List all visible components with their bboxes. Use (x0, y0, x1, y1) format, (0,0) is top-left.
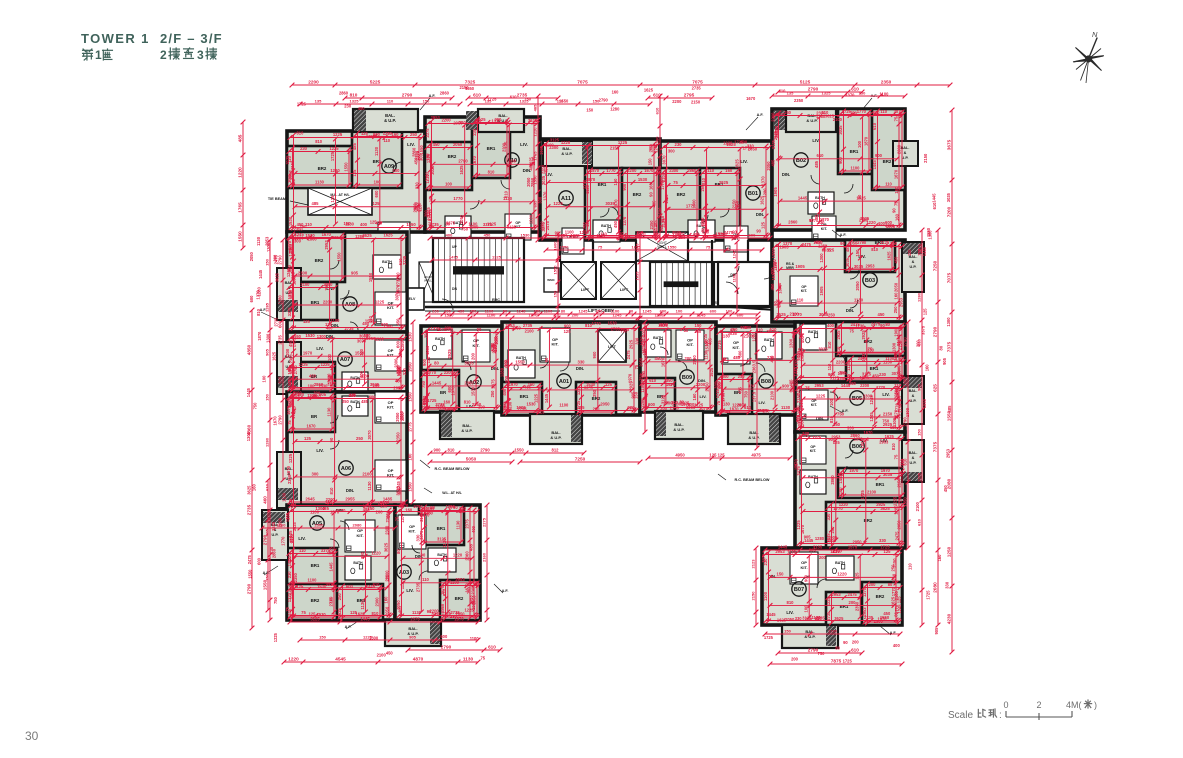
svg-text:750: 750 (621, 329, 629, 334)
svg-text:2790: 2790 (932, 326, 937, 337)
svg-text:900: 900 (434, 447, 442, 452)
svg-text:1280: 1280 (288, 289, 293, 299)
svg-text:250: 250 (410, 132, 418, 137)
svg-text:90: 90 (555, 230, 560, 235)
svg-text:LIV.: LIV. (520, 142, 528, 147)
svg-text:485: 485 (532, 104, 537, 111)
svg-text:2350: 2350 (289, 533, 294, 543)
svg-text:1670: 1670 (306, 423, 316, 428)
svg-text:1225: 1225 (618, 140, 628, 145)
svg-text:4975: 4975 (751, 452, 761, 457)
svg-text:750: 750 (324, 283, 329, 291)
svg-text:& U.P.: & U.P. (673, 427, 684, 432)
svg-text:330: 330 (748, 383, 756, 388)
svg-text:7325: 7325 (465, 79, 476, 84)
svg-text:1530: 1530 (407, 332, 412, 342)
svg-text:BR1: BR1 (850, 149, 859, 154)
svg-text:160: 160 (692, 393, 697, 401)
svg-text:BR2: BR2 (315, 258, 324, 263)
svg-text:450: 450 (613, 220, 618, 228)
svg-text:450: 450 (386, 651, 394, 656)
svg-text:1130: 1130 (367, 481, 372, 491)
svg-text:BR1: BR1 (870, 366, 879, 371)
svg-text:1100: 1100 (776, 112, 786, 117)
svg-text:75: 75 (481, 656, 486, 661)
svg-text:1370: 1370 (582, 179, 587, 189)
svg-text:1530: 1530 (861, 352, 866, 362)
svg-text:1100: 1100 (851, 165, 861, 170)
svg-text:1220: 1220 (528, 214, 533, 224)
svg-text:230: 230 (896, 370, 901, 378)
svg-text:100: 100 (478, 404, 486, 409)
svg-text:2100: 2100 (770, 390, 775, 400)
svg-text:2300: 2300 (288, 354, 293, 364)
svg-text:250: 250 (356, 436, 364, 441)
svg-text:2050: 2050 (735, 200, 740, 210)
svg-text:610: 610 (851, 647, 859, 652)
svg-text:2735: 2735 (277, 335, 282, 345)
svg-text:1905: 1905 (819, 286, 824, 296)
svg-text:2300: 2300 (315, 522, 325, 527)
svg-text:BR1: BR1 (311, 300, 320, 305)
svg-text:1530: 1530 (608, 320, 618, 325)
svg-text:400: 400 (395, 378, 403, 383)
svg-text:1970: 1970 (509, 382, 519, 387)
svg-text:BR2: BR2 (311, 598, 320, 603)
svg-text:U.P.: U.P. (910, 461, 917, 465)
svg-text:905: 905 (264, 348, 269, 355)
svg-text:2300: 2300 (294, 235, 304, 240)
svg-text:1220: 1220 (453, 553, 463, 558)
svg-text:810: 810 (827, 341, 832, 349)
svg-text:125 125: 125 125 (709, 452, 725, 457)
svg-text:1245: 1245 (517, 308, 527, 313)
svg-text:1530: 1530 (288, 216, 293, 226)
svg-text:485: 485 (771, 159, 776, 167)
svg-text:2200: 2200 (308, 79, 319, 84)
svg-text:1100: 1100 (880, 91, 890, 96)
svg-text:905: 905 (409, 634, 416, 639)
svg-text:200: 200 (376, 510, 384, 515)
svg-text:125: 125 (897, 596, 902, 604)
svg-text:2953: 2953 (324, 240, 329, 250)
svg-text:1250: 1250 (946, 546, 951, 557)
svg-text:1530: 1530 (813, 240, 823, 245)
svg-text:1625: 1625 (383, 232, 393, 237)
svg-text:610: 610 (504, 190, 509, 198)
svg-text:90: 90 (799, 332, 804, 337)
svg-text:2790: 2790 (293, 365, 298, 375)
svg-text:1300: 1300 (425, 345, 430, 355)
svg-text:810: 810 (829, 415, 834, 423)
svg-text:2050: 2050 (848, 241, 858, 246)
svg-text:1530: 1530 (638, 177, 648, 182)
svg-text:2300: 2300 (816, 110, 826, 115)
svg-text:1245: 1245 (579, 308, 589, 313)
svg-text:80: 80 (446, 221, 451, 226)
svg-text:75: 75 (287, 420, 292, 425)
svg-text:230: 230 (805, 616, 813, 621)
svg-text:2200: 2200 (686, 405, 696, 410)
svg-text:DIN.: DIN. (782, 172, 790, 177)
svg-text:LIV.: LIV. (786, 610, 793, 615)
svg-text:2050: 2050 (894, 282, 899, 292)
svg-text:2953: 2953 (292, 337, 297, 347)
svg-text:2300: 2300 (298, 270, 308, 275)
svg-text:125: 125 (396, 289, 401, 297)
svg-text:2735: 2735 (826, 611, 831, 621)
svg-text:2350: 2350 (881, 79, 892, 84)
svg-text:230: 230 (286, 512, 291, 520)
svg-text:1575: 1575 (848, 544, 858, 549)
svg-text:100: 100 (676, 308, 683, 313)
svg-text:1100: 1100 (559, 403, 569, 408)
svg-text:1100: 1100 (545, 143, 555, 148)
svg-text:1625: 1625 (886, 251, 891, 261)
svg-text:& U.P.: & U.P. (748, 435, 759, 440)
svg-text:450: 450 (791, 332, 796, 340)
svg-text:610: 610 (817, 153, 825, 158)
svg-text:610: 610 (442, 588, 447, 596)
svg-text:1280: 1280 (355, 234, 365, 239)
svg-text:1280: 1280 (916, 292, 921, 302)
svg-text:90: 90 (756, 228, 761, 233)
svg-text:2300: 2300 (790, 312, 800, 317)
svg-text:2150: 2150 (897, 340, 902, 350)
svg-text:1550: 1550 (336, 252, 341, 262)
svg-text:150: 150 (695, 323, 703, 328)
svg-text:110: 110 (907, 249, 912, 256)
svg-text:1245: 1245 (869, 412, 874, 422)
svg-text:BATH: BATH (653, 336, 663, 340)
svg-text:230: 230 (641, 338, 646, 346)
svg-text:EMC: EMC (492, 298, 500, 302)
svg-text:150: 150 (916, 428, 921, 435)
svg-text:LIV.: LIV. (812, 138, 819, 143)
svg-text:600: 600 (290, 397, 295, 405)
svg-text:1100: 1100 (470, 636, 480, 641)
svg-text:1130: 1130 (315, 179, 325, 184)
svg-text:A.F.: A.F. (345, 625, 352, 629)
svg-text:5225: 5225 (370, 79, 381, 84)
svg-text:600: 600 (749, 232, 756, 237)
svg-text:1300: 1300 (582, 222, 587, 232)
svg-text:2735: 2735 (344, 326, 354, 331)
svg-text:250: 250 (596, 308, 603, 313)
svg-text:450: 450 (433, 142, 441, 147)
svg-text:200: 200 (373, 383, 381, 388)
svg-text:1905: 1905 (886, 224, 896, 229)
svg-text:200: 200 (470, 352, 475, 360)
svg-text:450: 450 (543, 165, 548, 173)
svg-text:2080: 2080 (932, 582, 937, 593)
svg-text:BATH: BATH (353, 561, 363, 565)
svg-text:BR2: BR2 (883, 159, 892, 164)
svg-text:3070: 3070 (799, 348, 804, 358)
svg-text:1445: 1445 (872, 160, 877, 170)
svg-text:LIV.: LIV. (740, 159, 747, 164)
svg-text:1130: 1130 (442, 538, 447, 548)
svg-text:610: 610 (649, 378, 657, 383)
svg-text:2080: 2080 (353, 522, 363, 527)
svg-text:812: 812 (552, 447, 560, 452)
svg-text:230: 230 (770, 267, 775, 275)
svg-text:1625: 1625 (735, 159, 740, 169)
svg-text:2350: 2350 (772, 259, 777, 269)
svg-text:750: 750 (638, 373, 643, 381)
svg-text:1770: 1770 (336, 508, 346, 513)
svg-text:90: 90 (477, 327, 482, 332)
svg-text:1625: 1625 (759, 195, 764, 205)
svg-text:1725: 1725 (366, 134, 376, 139)
svg-text:2953: 2953 (265, 236, 270, 246)
svg-text:450: 450 (770, 283, 775, 291)
svg-text:LIFT: LIFT (581, 287, 590, 292)
svg-text:125: 125 (304, 436, 312, 441)
svg-text:1100: 1100 (487, 312, 496, 317)
svg-text:200: 200 (819, 555, 827, 560)
svg-text:610: 610 (264, 483, 269, 490)
svg-text:200: 200 (572, 312, 579, 317)
svg-text:750: 750 (882, 418, 890, 423)
svg-text:1765: 1765 (237, 202, 242, 213)
svg-text:400: 400 (326, 325, 334, 330)
svg-text:3: 3 (197, 48, 204, 62)
svg-text:): ) (1094, 700, 1097, 710)
svg-text:BR1: BR1 (487, 146, 496, 151)
svg-text:90: 90 (843, 640, 848, 645)
svg-text:230: 230 (344, 104, 352, 109)
svg-text:1280: 1280 (256, 287, 261, 297)
svg-text:KIT.: KIT. (551, 342, 558, 347)
svg-text:230: 230 (287, 571, 292, 579)
svg-text:160: 160 (383, 596, 388, 604)
svg-text:1530: 1530 (657, 207, 662, 217)
svg-text:BATH: BATH (382, 260, 392, 264)
svg-text:400: 400 (641, 329, 646, 337)
svg-text:1220: 1220 (288, 656, 299, 661)
svg-text:810: 810 (659, 224, 664, 232)
svg-text:1370: 1370 (431, 326, 441, 331)
svg-text:& U.P.: & U.P. (561, 151, 572, 156)
svg-text:300: 300 (671, 400, 679, 405)
svg-text:450: 450 (883, 611, 891, 616)
svg-text:90: 90 (730, 328, 735, 333)
svg-text:75: 75 (896, 413, 901, 418)
svg-text:330: 330 (415, 182, 420, 190)
svg-text:1225: 1225 (333, 132, 343, 137)
svg-text:200: 200 (777, 282, 782, 290)
svg-text:1550: 1550 (515, 359, 525, 364)
svg-text:2925: 2925 (861, 330, 866, 340)
svg-text:810: 810 (448, 447, 456, 452)
svg-text:2200: 2200 (774, 125, 779, 135)
svg-text:BR1: BR1 (311, 563, 320, 568)
svg-text:7375: 7375 (932, 441, 937, 452)
svg-text:2363.5: 2363.5 (751, 360, 756, 373)
svg-text:2375: 2375 (464, 519, 469, 529)
svg-text:75: 75 (805, 386, 810, 391)
svg-text:160: 160 (924, 364, 929, 372)
svg-text:0: 0 (1003, 700, 1008, 710)
svg-text:2: 2 (1036, 700, 1041, 710)
svg-text:250: 250 (342, 399, 350, 404)
svg-text:400: 400 (397, 606, 402, 614)
svg-text:2200: 2200 (672, 99, 682, 104)
svg-text:BATH: BATH (808, 330, 818, 334)
svg-text:600: 600 (374, 190, 379, 198)
svg-text:400: 400 (360, 222, 368, 227)
svg-text:2790: 2790 (458, 159, 468, 164)
svg-text:2790: 2790 (402, 92, 413, 97)
svg-text:75: 75 (849, 328, 854, 333)
svg-text:125: 125 (352, 169, 357, 177)
svg-text:Scale: Scale (948, 710, 973, 721)
svg-text:2953: 2953 (288, 170, 293, 180)
svg-text:150: 150 (859, 90, 866, 95)
svg-text:BR2: BR2 (677, 192, 686, 197)
svg-text:KIT.: KIT. (356, 533, 363, 538)
svg-text:1550: 1550 (837, 376, 847, 381)
svg-text:75: 75 (868, 347, 873, 352)
svg-text:1130: 1130 (400, 580, 405, 590)
svg-text:200: 200 (393, 168, 401, 173)
svg-text:2300: 2300 (394, 358, 399, 368)
svg-text:7375: 7375 (946, 341, 951, 352)
svg-text:1: 1 (95, 48, 102, 62)
svg-text:4850: 4850 (246, 344, 251, 355)
svg-text:2200: 2200 (323, 299, 333, 304)
svg-text:610: 610 (277, 376, 282, 384)
svg-text:DIN.: DIN. (346, 488, 354, 493)
svg-text:BR: BR (311, 414, 318, 419)
svg-text:610: 610 (428, 218, 433, 226)
svg-text:1220: 1220 (426, 153, 431, 163)
svg-text:1280: 1280 (264, 437, 269, 447)
svg-text:2050: 2050 (600, 401, 610, 406)
svg-text:810: 810 (701, 177, 706, 185)
svg-text:2925: 2925 (836, 330, 841, 340)
svg-text:1300: 1300 (946, 317, 951, 327)
svg-text:625: 625 (932, 384, 937, 392)
svg-text:2860: 2860 (398, 348, 403, 358)
svg-text:1625: 1625 (885, 434, 895, 439)
svg-text:485: 485 (737, 386, 742, 394)
svg-text:BR2: BR2 (318, 166, 327, 171)
svg-text:610: 610 (510, 94, 518, 99)
svg-text:1550: 1550 (407, 392, 412, 402)
svg-text:1280: 1280 (893, 351, 898, 361)
svg-text:DIN.: DIN. (576, 366, 584, 371)
svg-text:3625: 3625 (271, 521, 276, 531)
svg-text:B09: B09 (682, 375, 692, 381)
svg-text:90: 90 (427, 609, 432, 614)
svg-text:2790: 2790 (808, 86, 819, 91)
svg-text:3035: 3035 (464, 361, 474, 366)
svg-text:1670: 1670 (863, 430, 873, 435)
svg-text:1770: 1770 (857, 109, 867, 114)
svg-text:1625: 1625 (459, 165, 464, 175)
svg-text:100: 100 (829, 398, 834, 406)
svg-text:1725: 1725 (925, 590, 930, 600)
svg-text:2050: 2050 (459, 214, 464, 224)
svg-text:BR2: BR2 (876, 594, 885, 599)
svg-text:2790: 2790 (246, 583, 251, 594)
svg-text:2790: 2790 (857, 240, 867, 245)
svg-text:1905: 1905 (795, 264, 805, 269)
svg-text:1220: 1220 (371, 551, 381, 556)
svg-text:U.P.: U.P. (910, 399, 917, 403)
svg-text:150: 150 (586, 107, 594, 112)
svg-text:750: 750 (461, 227, 469, 232)
svg-text:110: 110 (885, 181, 892, 186)
svg-text:2860: 2860 (308, 237, 318, 242)
svg-text:1625: 1625 (709, 367, 714, 377)
svg-text:1225: 1225 (273, 632, 278, 642)
svg-text:1670: 1670 (800, 524, 805, 534)
svg-text:750: 750 (273, 596, 278, 604)
svg-text:2860: 2860 (830, 475, 835, 485)
svg-text:7250: 7250 (575, 456, 586, 461)
svg-text:610: 610 (932, 202, 937, 210)
svg-text:200: 200 (314, 394, 322, 399)
svg-text:230: 230 (432, 308, 439, 313)
svg-text:750: 750 (466, 587, 471, 595)
svg-text:1725: 1725 (427, 398, 437, 403)
svg-text:810: 810 (488, 169, 496, 174)
svg-text:485: 485 (349, 393, 357, 398)
svg-text:80: 80 (396, 549, 401, 554)
svg-text:100: 100 (860, 441, 865, 449)
svg-text:100: 100 (328, 596, 333, 604)
svg-text:125: 125 (330, 195, 335, 203)
svg-text:LIFT: LIFT (620, 287, 629, 292)
svg-text:1130: 1130 (326, 407, 331, 417)
svg-text:125: 125 (303, 319, 311, 324)
svg-text:LIV.: LIV. (700, 394, 707, 399)
svg-text:75: 75 (893, 454, 898, 459)
svg-text:2735: 2735 (816, 615, 826, 620)
svg-text:2200: 2200 (326, 497, 336, 502)
svg-text:750: 750 (421, 369, 426, 377)
svg-text:2475: 2475 (626, 350, 631, 360)
svg-text:BATH: BATH (350, 400, 360, 404)
svg-text:610: 610 (473, 92, 481, 97)
svg-text:1100: 1100 (763, 591, 768, 601)
svg-text:610: 610 (654, 107, 659, 114)
svg-text:1130: 1130 (787, 550, 797, 555)
svg-text:1530: 1530 (305, 333, 315, 338)
svg-text:1530: 1530 (526, 402, 536, 407)
svg-text:485: 485 (363, 507, 371, 512)
svg-text:WELL: WELL (657, 245, 666, 249)
svg-text:1445: 1445 (766, 612, 776, 617)
svg-text:250: 250 (592, 389, 597, 397)
svg-text:810: 810 (297, 130, 305, 135)
svg-text:3625: 3625 (880, 506, 890, 511)
svg-text:KIT.: KIT. (732, 345, 739, 350)
svg-text:1225: 1225 (299, 362, 309, 367)
svg-text:&: & (912, 260, 915, 264)
svg-text:1770: 1770 (281, 536, 286, 546)
svg-text:1130: 1130 (883, 360, 893, 365)
svg-text:100: 100 (790, 385, 795, 393)
svg-text:600: 600 (249, 295, 254, 303)
svg-text:1225: 1225 (571, 233, 581, 238)
svg-text:250: 250 (470, 308, 477, 313)
svg-text:1280: 1280 (815, 536, 825, 541)
svg-text:U.P.: U.P. (902, 156, 909, 160)
